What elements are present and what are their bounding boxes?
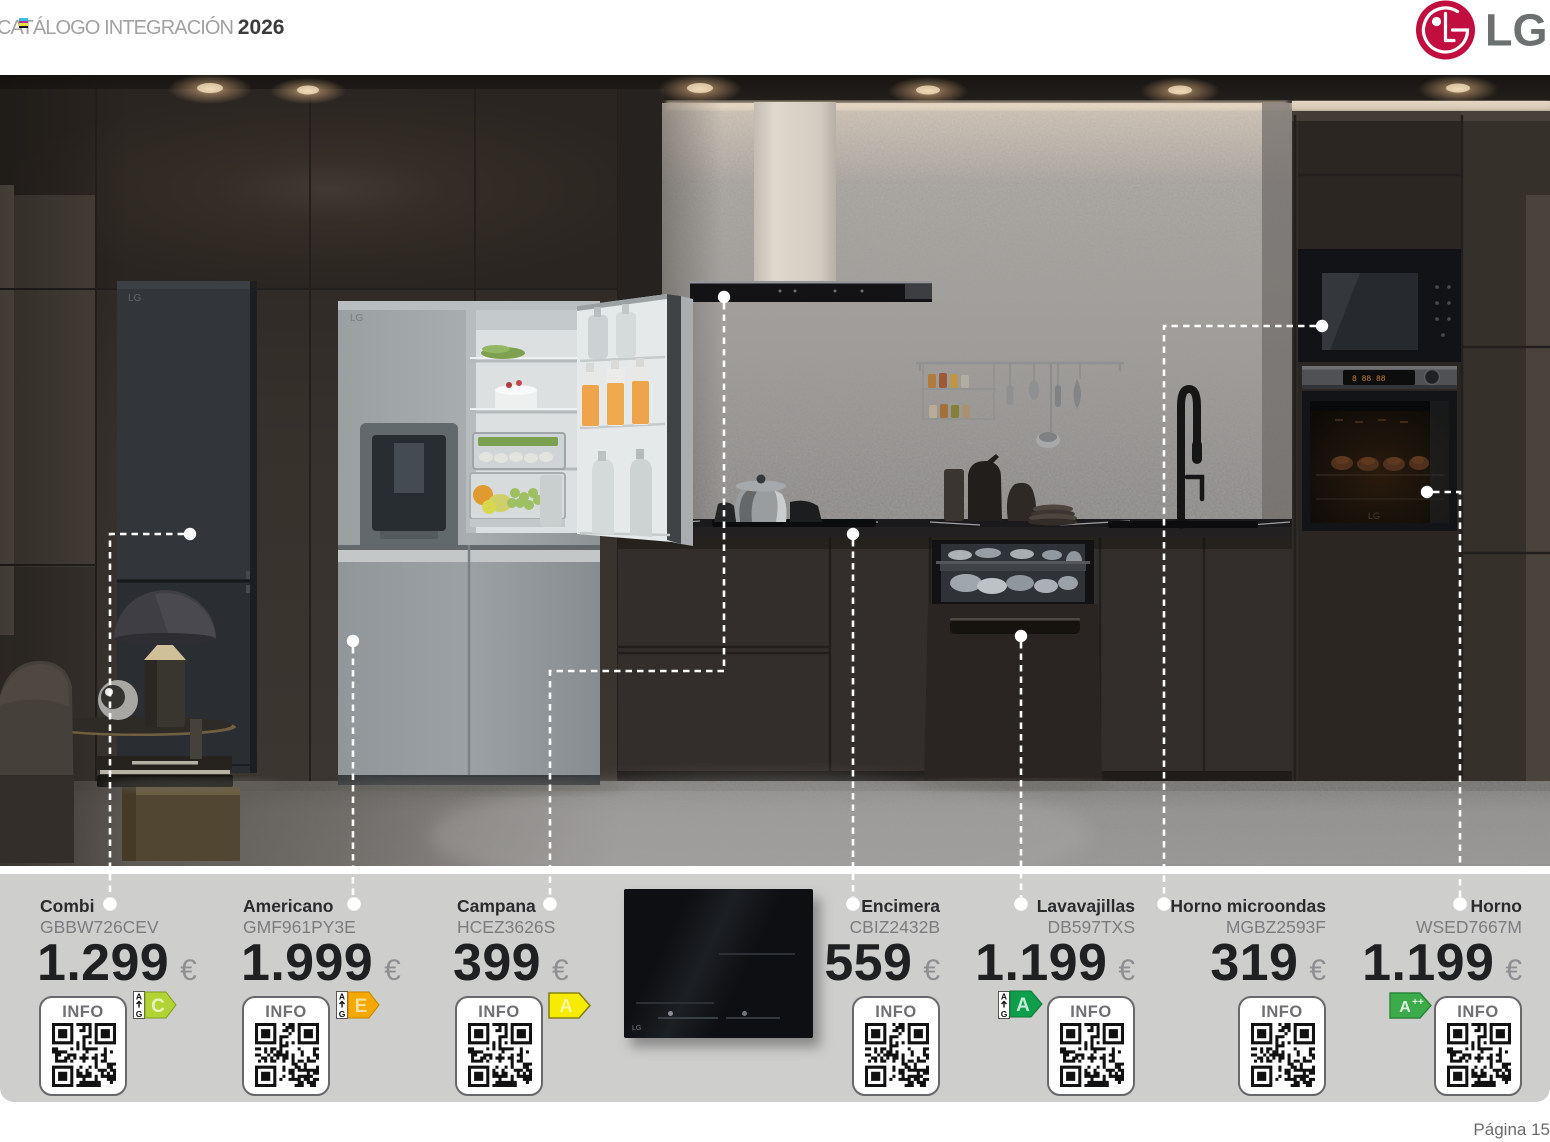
svg-text:C: C bbox=[151, 996, 165, 1017]
svg-text:G: G bbox=[136, 1009, 143, 1019]
svg-text:++: ++ bbox=[1412, 997, 1424, 1008]
svg-text:A: A bbox=[339, 992, 345, 1002]
svg-text:A: A bbox=[560, 996, 573, 1016]
svg-text:A: A bbox=[136, 992, 142, 1002]
svg-text:G: G bbox=[339, 1009, 346, 1019]
svg-text:G: G bbox=[1001, 1009, 1008, 1019]
svg-text:A: A bbox=[1399, 999, 1411, 1016]
svg-text:E: E bbox=[355, 996, 368, 1017]
svg-text:A: A bbox=[1016, 995, 1030, 1016]
svg-text:A: A bbox=[1001, 992, 1007, 1002]
